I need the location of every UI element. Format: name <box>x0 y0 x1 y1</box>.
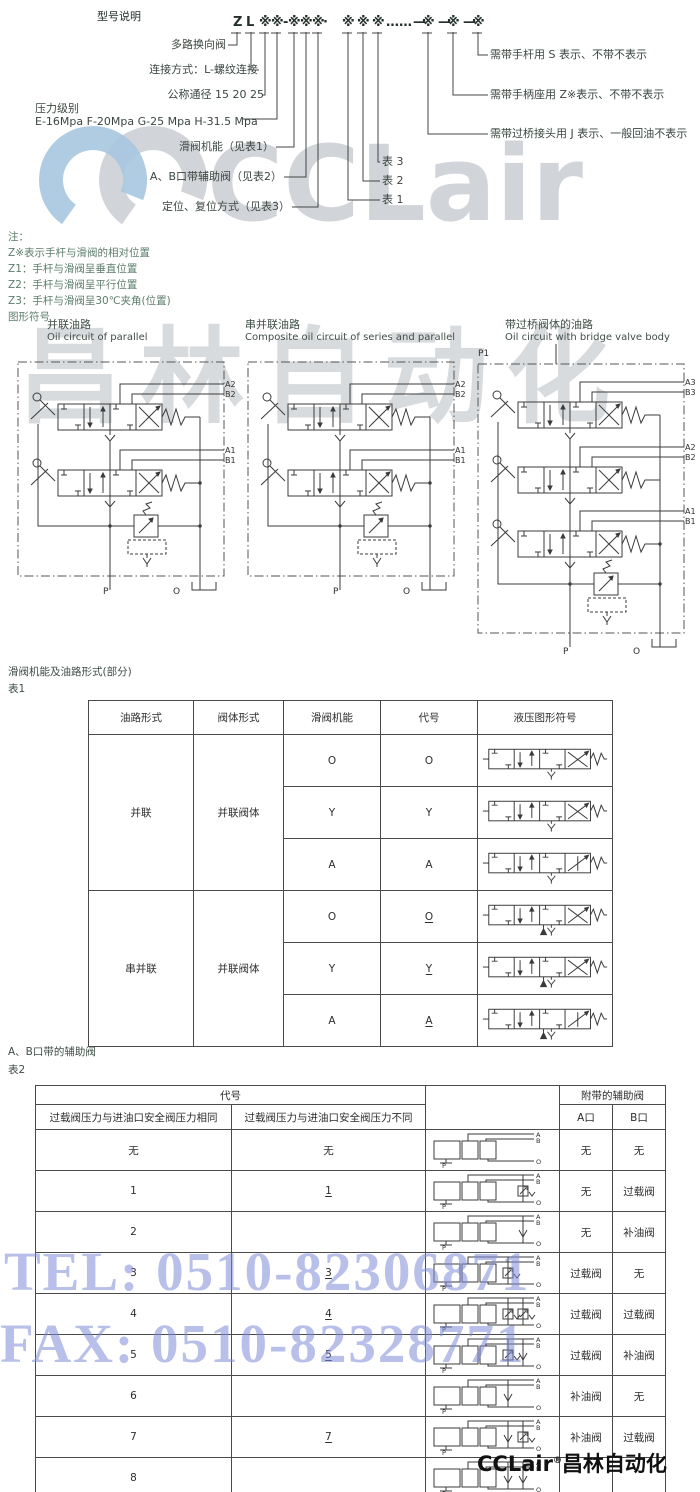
span-element: A <box>425 1015 432 1027</box>
text-element: B3 <box>685 388 696 397</box>
table2-row: 11ABPO无过载阀 <box>36 1171 666 1212</box>
table2-row: 55ABPO过载阀补油阀 <box>36 1335 666 1376</box>
text-element: O <box>633 647 640 657</box>
table2-header-row2: 过载阀压力与进油口安全阀压力相同过载阀压力与进油口安全阀压力不同A口B口 <box>36 1105 666 1130</box>
aux-valve-symbol: ABPO <box>430 1130 556 1170</box>
path-element <box>343 470 363 496</box>
rect-element <box>462 1387 478 1405</box>
path-element <box>530 751 534 755</box>
footer-company-name: 昌林自动化 <box>562 1452 667 1476</box>
text-element: A1 <box>455 446 466 455</box>
aux-valve-symbol: ABPO <box>430 1335 556 1375</box>
polyline-element <box>603 560 612 573</box>
path-element <box>514 1315 520 1319</box>
rect-element <box>128 540 166 554</box>
polyline-element <box>392 475 421 491</box>
path-element <box>529 1438 535 1442</box>
g-element <box>434 1257 534 1286</box>
model-table-ref-label: 表 2 <box>382 174 404 187</box>
table2-a-cell: 无 <box>560 1212 613 1253</box>
table1-function-cell: A <box>284 839 381 891</box>
text-element: P <box>442 1244 446 1252</box>
circuit-title-cn: 并联油路 <box>47 318 148 331</box>
table2-same-cell: 1 <box>36 1171 232 1212</box>
polyline-element <box>392 409 421 425</box>
g-element <box>483 801 607 831</box>
g-element <box>483 853 607 883</box>
path-element <box>379 518 383 522</box>
circle-element <box>198 481 201 484</box>
path-element <box>478 32 488 55</box>
rect-element <box>462 1264 478 1282</box>
circuit-diagram-2: A2B2A1B1PO <box>240 354 470 604</box>
table1-function-cell: O <box>284 735 381 787</box>
polyline-element <box>590 805 607 817</box>
text-element: O <box>536 1322 541 1330</box>
table1-circuit-cell: 串并联 <box>89 891 194 1047</box>
path-element <box>521 402 541 428</box>
table1-code-cell: O <box>381 891 478 943</box>
path-element <box>518 918 522 922</box>
path-element <box>652 639 676 647</box>
g-element <box>434 1134 534 1163</box>
rect-element <box>480 1387 496 1405</box>
document-page: CCLair 昌林自动化 型号说明 ZL※※-※※※·※※※……—※—※—※ 多… <box>0 0 700 1492</box>
path-element <box>514 1274 520 1278</box>
rect-element <box>478 364 684 633</box>
span-element: 1 <box>325 1185 332 1197</box>
table2-same-cell: 2 <box>36 1212 232 1253</box>
table1-header-cell: 代号 <box>381 701 478 735</box>
text-element: B1 <box>455 456 466 465</box>
text-element: B2 <box>685 453 696 462</box>
g-element <box>31 459 191 512</box>
rect-element <box>480 1141 496 1159</box>
table2-header-row1: 代号附带的辅助阀 <box>36 1086 666 1105</box>
text-element: O <box>536 1486 541 1492</box>
text-element: B <box>536 1424 540 1432</box>
table2-row: 无无ABPO无无 <box>36 1130 666 1171</box>
path-element <box>149 518 153 522</box>
path-element <box>548 486 552 490</box>
note-line: Z1：手杆与滑阀呈垂直位置 <box>8 261 171 277</box>
path-element <box>518 970 522 974</box>
path-element <box>547 875 555 880</box>
circle-element <box>428 481 431 484</box>
path-element <box>468 1298 534 1305</box>
table2-symbol-cell: ABPO <box>426 1212 560 1253</box>
rect-element <box>434 1346 460 1364</box>
path-element <box>529 1192 535 1196</box>
path-element <box>468 1175 534 1182</box>
table2-symbol-cell: ABPO <box>426 1253 560 1294</box>
path-element <box>363 32 380 181</box>
path-element <box>143 558 151 564</box>
table1: 油路形式阀体形式滑阀机能代号液压图形符号并联并联阀体OOYYAA串并联并联阀体O… <box>88 700 613 1047</box>
text-element: B1 <box>685 517 696 526</box>
circle-element <box>568 582 571 585</box>
table1-body-cell: 并联阀体 <box>194 735 284 891</box>
text-element: B2 <box>455 390 466 399</box>
g-element <box>491 391 651 444</box>
table2-a-cell: 过载阀 <box>560 1294 613 1335</box>
path-element <box>530 959 534 963</box>
path-element <box>348 32 380 200</box>
circuit-title-en: Composite oil circuit of series and para… <box>245 331 455 344</box>
path-element <box>276 32 294 147</box>
rect-element <box>480 1428 496 1446</box>
text-element: B1 <box>225 456 236 465</box>
path-element <box>468 1380 534 1387</box>
table2-a-cell: 无 <box>560 1130 613 1171</box>
g-element <box>483 1009 607 1039</box>
text-element: A3 <box>685 378 696 387</box>
g-element <box>344 502 408 567</box>
table2-symbol-cell: ABPO <box>426 1335 560 1376</box>
path-element <box>543 905 563 925</box>
text-element: P <box>442 1203 446 1211</box>
model-callout-label: 滑阀机能（见表1） <box>179 140 274 153</box>
path-element <box>331 473 335 477</box>
rect-element <box>462 1141 478 1159</box>
path-element <box>468 1421 534 1428</box>
table1-header-cell: 油路形式 <box>89 701 194 735</box>
path-element <box>609 576 613 580</box>
path-element <box>518 866 522 870</box>
model-callout-label: E-16Mpa F-20Mpa G-25 Mpa H-31.5 Mpa <box>35 115 258 128</box>
table1-symbol-cell <box>478 735 613 787</box>
table2-diff-header: 过载阀压力与进油口安全阀压力不同 <box>232 1105 426 1130</box>
note-line: Z3：手杆与滑阀呈30℃夹角(位置) <box>8 293 171 309</box>
table2-diff-cell <box>232 1458 426 1492</box>
table1-label: 表1 <box>8 681 25 696</box>
table2-same-cell: 8 <box>36 1458 232 1492</box>
table2-b-cell: 过载阀 <box>613 1171 666 1212</box>
line-element <box>270 466 286 482</box>
table1-function-cell: A <box>284 995 381 1047</box>
path-element <box>529 1315 535 1319</box>
line-element <box>491 466 508 482</box>
table2-same-cell: 5 <box>36 1335 232 1376</box>
path-element <box>518 762 522 766</box>
rect-element <box>462 1305 478 1323</box>
circle-element <box>108 524 111 527</box>
text-element: P <box>563 647 569 657</box>
g-element <box>491 456 651 509</box>
g-element <box>434 1175 535 1204</box>
table2-b-cell: 无 <box>613 1376 666 1417</box>
path-element <box>468 1257 534 1264</box>
path-element <box>132 394 224 404</box>
path-element <box>331 407 335 411</box>
rect-element <box>434 1387 460 1405</box>
path-element <box>318 489 322 493</box>
g-element <box>114 502 178 567</box>
table1-header-cell: 液压图形符号 <box>478 701 613 735</box>
hydraulic-symbol <box>479 845 611 885</box>
line-element <box>491 530 508 546</box>
circuit-title: 并联油路Oil circuit of parallel <box>47 318 148 344</box>
table1-header-cell: 阀体形式 <box>194 701 284 735</box>
path-element <box>492 801 512 821</box>
polyline-element <box>143 502 152 515</box>
path-element <box>547 927 555 932</box>
polyline-element <box>622 407 651 423</box>
span-element: A <box>425 859 432 871</box>
line-element <box>31 403 48 419</box>
footer-brand-name: CCLair <box>477 1452 553 1476</box>
aux-valve-symbol: ABPO <box>430 1376 556 1416</box>
table1-symbol-cell <box>478 943 613 995</box>
g-element <box>483 957 607 987</box>
path-element <box>541 1032 547 1038</box>
path-element <box>378 32 380 162</box>
circuit-title: 串并联油路Composite oil circuit of series and… <box>245 318 455 344</box>
table1-function-cell: O <box>284 891 381 943</box>
note-line: Z2：手杆与滑阀呈平行位置 <box>8 277 171 293</box>
path-element <box>573 531 593 557</box>
path-element <box>573 402 593 428</box>
path-element <box>492 853 512 873</box>
model-callout-label-right: 需带手柄座用 Z※表示、不带不表示 <box>490 88 664 101</box>
table1-code-cell: A <box>381 995 478 1047</box>
path-element <box>88 489 92 493</box>
text-element: A2 <box>225 380 236 389</box>
table2-row: 6ABPO补油阀无 <box>36 1376 666 1417</box>
table2-row: 44ABPO过载阀过载阀 <box>36 1294 666 1335</box>
path-element <box>518 814 522 818</box>
polyline-element <box>590 1013 607 1025</box>
g-element <box>261 393 421 446</box>
text-element: B <box>536 1260 540 1268</box>
span-element: 7 <box>325 1431 332 1443</box>
span-element: 5 <box>325 1349 332 1361</box>
table2-diff-cell: 4 <box>232 1294 426 1335</box>
path-element <box>468 1134 534 1141</box>
path-element <box>318 423 322 427</box>
path-element <box>548 550 552 554</box>
polyline-element <box>590 909 607 921</box>
path-element <box>592 392 684 402</box>
path-element <box>543 801 563 821</box>
path-element <box>543 1009 563 1029</box>
path-element <box>428 32 488 134</box>
path-element <box>521 467 541 493</box>
polyline-element <box>590 961 607 973</box>
path-element <box>132 460 224 470</box>
table2-a-cell: 补油阀 <box>560 1376 613 1417</box>
rect-element <box>462 1346 478 1364</box>
model-table-ref-label: 表 3 <box>382 155 404 168</box>
path-element <box>61 404 81 430</box>
rect-element <box>434 1182 460 1200</box>
text-element: A2 <box>455 380 466 389</box>
circuit-title-en: Oil circuit of parallel <box>47 331 148 344</box>
table2-b-cell: 无 <box>613 1253 666 1294</box>
rect-element <box>434 1223 460 1241</box>
path-element <box>530 855 534 859</box>
circuit-diagram-1: A2B2A1B1PO <box>10 354 240 604</box>
circle-element <box>198 524 201 527</box>
table2-diff-cell: 1 <box>232 1171 426 1212</box>
g-element <box>483 905 607 935</box>
path-element <box>113 470 133 496</box>
table2-symbol-cell: ABPO <box>426 1376 560 1417</box>
table2-a-cell: 过载阀 <box>560 1335 613 1376</box>
table2-same-cell: 6 <box>36 1376 232 1417</box>
path-element <box>262 32 265 95</box>
table2-b-cell: 过载阀 <box>613 1294 666 1335</box>
aux-valve-symbol: ABPO <box>430 1171 556 1211</box>
table2-section-title: A、B口带的辅助阀 <box>8 1044 96 1059</box>
table2-diff-cell: 3 <box>232 1253 426 1294</box>
path-element <box>492 749 512 769</box>
table1-symbol-cell <box>478 891 613 943</box>
g-element <box>434 1298 535 1327</box>
polyline-element <box>622 536 651 552</box>
text-element: O <box>536 1281 541 1289</box>
rect-element <box>462 1182 478 1200</box>
text-element: P <box>442 1449 446 1457</box>
path-element <box>362 394 454 404</box>
table2: 代号附带的辅助阀过载阀压力与进油口安全阀压力相同过载阀压力与进油口安全阀压力不同… <box>35 1085 666 1492</box>
g-element <box>483 749 607 779</box>
hydraulic-symbol <box>479 897 611 937</box>
aux-valve-symbol: ABPO <box>430 1212 556 1252</box>
path-element <box>530 1011 534 1015</box>
path-element <box>521 531 541 557</box>
circuit-title: 带过桥阀体的油路Oil circuit with bridge valve bo… <box>505 318 670 344</box>
table2-same-cell: 7 <box>36 1417 232 1458</box>
path-element <box>291 404 311 430</box>
line-element <box>491 401 508 417</box>
rect-element <box>434 1264 460 1282</box>
g-element <box>491 520 651 573</box>
circuit-title-cn: 带过桥阀体的油路 <box>505 318 670 331</box>
path-element <box>561 534 565 538</box>
path-element <box>599 578 612 591</box>
table1-circuit-cell: 并联 <box>89 735 194 891</box>
table2-b-cell: 补油阀 <box>613 1335 666 1376</box>
path-element <box>592 457 684 467</box>
text-element: A2 <box>685 443 696 452</box>
circle-element <box>658 542 661 545</box>
table2-a-cell: 过载阀 <box>560 1253 613 1294</box>
model-callout-label: A、B口带辅助阀（见表2） <box>150 170 282 183</box>
path-element <box>369 520 382 533</box>
path-element <box>453 32 488 95</box>
notes-block: 注：Z※表示手杆与滑阀的相对位置Z1：手杆与滑阀呈垂直位置Z2：手杆与滑阀呈平行… <box>8 229 171 325</box>
table2-symbol-cell: ABPO <box>426 1294 560 1335</box>
path-element <box>547 771 555 776</box>
table2-same-cell: 无 <box>36 1130 232 1171</box>
table2-row: 2ABPO无补油阀 <box>36 1212 666 1253</box>
table2-a-header: A口 <box>560 1105 613 1130</box>
path-element <box>547 1031 555 1036</box>
line-element <box>40 400 56 416</box>
table1-function-cell: Y <box>284 943 381 995</box>
rect-element <box>588 598 626 612</box>
path-element <box>530 803 534 807</box>
path-element <box>468 1339 534 1346</box>
text-element: O <box>536 1199 541 1207</box>
path-element <box>498 422 574 584</box>
text-element: A1 <box>225 446 236 455</box>
path-element <box>139 520 152 533</box>
table1-code-cell: A <box>381 839 478 891</box>
path-element <box>101 407 105 411</box>
table2-label: 表2 <box>8 1062 25 1077</box>
circuit-diagram-3: P1A3B3A2B2A1B1PO <box>470 342 700 664</box>
g-element <box>434 1216 534 1245</box>
path-element <box>518 1022 522 1026</box>
table2-row: 33ABPO过载阀无 <box>36 1253 666 1294</box>
text-element: P <box>442 1162 446 1170</box>
rect-element <box>480 1182 496 1200</box>
text-element: B <box>536 1301 540 1309</box>
line-element <box>500 463 516 479</box>
text-element: O <box>536 1158 541 1166</box>
model-table-ref-label: 表 1 <box>382 193 404 206</box>
circle-element <box>658 582 661 585</box>
path-element <box>468 1216 534 1223</box>
hydraulic-symbol <box>479 793 611 833</box>
text-element: B <box>536 1178 540 1186</box>
path-element <box>105 435 115 441</box>
table2-b-cell: 补油阀 <box>613 1212 666 1253</box>
g-element <box>574 560 638 625</box>
path-element <box>113 404 133 430</box>
path-element <box>88 423 92 427</box>
text-element: B <box>536 1342 540 1350</box>
path-element <box>543 749 563 769</box>
path-element <box>292 32 318 207</box>
table2-symbol-cell: ABPO <box>426 1171 560 1212</box>
path-element <box>543 853 563 873</box>
polyline-element <box>162 409 191 425</box>
model-callout-label: 压力级别 <box>35 102 79 115</box>
table1-function-cell: Y <box>284 787 381 839</box>
span-element: Y <box>426 807 432 819</box>
polyline-element <box>590 857 607 869</box>
model-callout-label: 多路换向阀 <box>171 38 226 51</box>
line-element <box>31 469 48 485</box>
path-element <box>492 905 512 925</box>
table2-b-cell: 无 <box>613 1130 666 1171</box>
path-element <box>592 521 684 531</box>
table1-section-title: 滑阀机能及油路形式(部分) <box>8 664 132 679</box>
table2-same-cell: 4 <box>36 1294 232 1335</box>
model-callout-label-right: 需带手杆用 S 表示、不带不表示 <box>490 48 647 61</box>
span-element: 3 <box>325 1267 332 1279</box>
footer-brand: CCLair®昌林自动化 <box>477 1448 667 1478</box>
path-element <box>543 957 563 977</box>
hydraulic-symbol <box>479 1001 611 1041</box>
table2-symbol-cell: ABPO <box>426 1130 560 1171</box>
path-element <box>492 1009 512 1029</box>
table1-code-cell: Y <box>381 787 478 839</box>
text-element: P <box>442 1367 446 1375</box>
rect-element <box>462 1223 478 1241</box>
tbody-element: 油路形式阀体形式滑阀机能代号液压图形符号并联并联阀体OOYYAA串并联并联阀体O… <box>89 701 613 1047</box>
tbody-element: 代号附带的辅助阀过载阀压力与进油口安全阀压力相同过载阀压力与进油口安全阀压力不同… <box>36 1086 666 1492</box>
path-element <box>561 470 565 474</box>
text-element: O <box>403 587 410 597</box>
text-element: P <box>103 587 109 597</box>
text-element: O <box>173 587 180 597</box>
circle-element <box>428 524 431 527</box>
rect-element <box>434 1305 460 1323</box>
